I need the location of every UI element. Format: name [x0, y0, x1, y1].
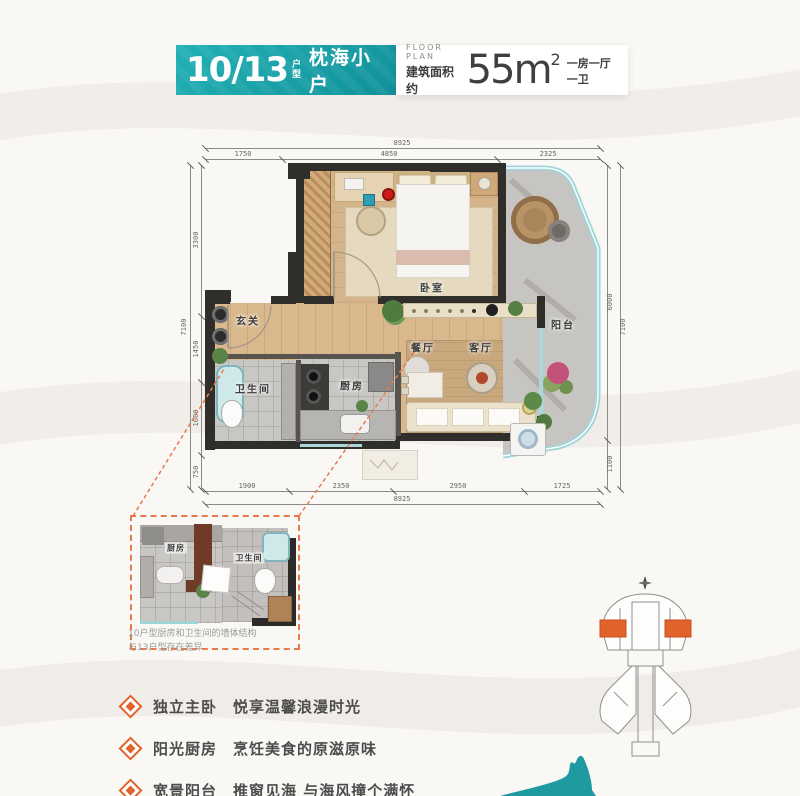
wall	[271, 296, 296, 304]
feature-title: 宽景阳台	[153, 780, 217, 796]
washing-machine-drum-icon	[518, 429, 538, 449]
dim-top-seg: 2325	[540, 150, 557, 158]
dim-right-seg: 1100	[606, 444, 614, 484]
stove-burner-icon	[306, 389, 321, 404]
sofa-cushion	[452, 408, 484, 426]
room-label-living: 客厅	[469, 340, 493, 355]
room-label-dining: 餐厅	[411, 340, 435, 355]
dimension-line	[205, 159, 600, 160]
inset-fridge	[142, 527, 164, 545]
wall	[537, 296, 545, 328]
inset-label-bathroom: 卫生间	[234, 553, 265, 564]
room-label-balcony: 阳台	[551, 317, 575, 332]
inset-bathtub	[262, 532, 290, 562]
entry-stool	[212, 328, 229, 345]
wall	[205, 290, 231, 302]
balcony-plant	[524, 392, 542, 410]
table-lamp	[478, 177, 491, 190]
feature-title: 阳光厨房	[153, 738, 217, 759]
feature-item: 独立主卧 悦享温馨浪漫时光	[122, 696, 415, 717]
balcony-flowers	[547, 362, 569, 384]
area-label: 建筑面积约	[406, 63, 461, 97]
inset-shelf	[268, 596, 292, 622]
area-banner: FLOOR PLAN 建筑面积约 55m2 一房一厅一卫	[396, 45, 628, 95]
balcony-table	[548, 220, 570, 242]
dimension-line	[205, 148, 600, 149]
dim-top-seg: 1750	[235, 150, 252, 158]
inset-note-line2: 与13户型存在差异	[128, 642, 256, 656]
inset-label-kitchen: 厨房	[165, 543, 187, 554]
feature-list: 独立主卧 悦享温馨浪漫时光 阳光厨房 烹饪美食的原滋原味 宽景阳台 推窗见海 与…	[122, 696, 415, 796]
title-banner: 10/13 户型 枕海小户	[176, 45, 396, 95]
speaker-icon	[382, 188, 395, 201]
inset-note-line1: 10户型厨房和卫生间的墙体结构	[128, 628, 256, 642]
feature-desc: 悦享温馨浪漫时光	[233, 696, 361, 717]
inset-door-leaf	[201, 565, 232, 594]
hall-plant	[382, 300, 404, 322]
wall	[304, 296, 334, 304]
inset-window	[140, 621, 198, 624]
stove-burner-icon	[306, 369, 321, 384]
room-label-bedroom: 卧室	[420, 280, 444, 295]
coffee-table-decor	[476, 372, 488, 384]
diamond-bullet-icon	[118, 694, 142, 718]
dim-left-seg: 1600	[192, 398, 200, 438]
laptop	[344, 178, 364, 190]
kitchen-sink	[340, 414, 370, 434]
sofa-cushion	[416, 408, 448, 426]
diamond-bullet-icon	[118, 736, 142, 760]
dining-table	[407, 372, 443, 398]
dim-left-seg: 3300	[192, 220, 200, 260]
desk-chair	[356, 206, 386, 236]
dim-right-seg: 6000	[606, 282, 614, 322]
layout-summary: 一房一厅一卫	[567, 55, 618, 95]
living-plant	[508, 301, 523, 316]
inset-toilet	[254, 568, 276, 594]
dimension-line	[201, 165, 202, 489]
area-value: 55m2	[467, 50, 561, 90]
wardrobe	[304, 171, 331, 302]
unit-name: 枕海小户	[309, 43, 386, 97]
inset-cabinet	[140, 556, 154, 598]
dim-top-seg: 4850	[381, 150, 398, 158]
dim-bottom-seg: 1725	[554, 482, 571, 490]
toilet	[221, 400, 243, 428]
dim-right-total: 7100	[619, 307, 627, 347]
wall	[498, 163, 506, 304]
kitchen-window	[300, 444, 362, 447]
room-label-entry: 玄关	[236, 313, 260, 328]
floorplan-page: 10/13 户型 枕海小户 FLOOR PLAN 建筑面积约 55m2 一房一厅…	[0, 0, 800, 796]
dimension-line	[190, 165, 191, 489]
tv-plant-pot	[486, 304, 498, 316]
dim-bottom-seg: 1900	[239, 482, 256, 490]
feature-item: 阳光厨房 烹饪美食的原滋原味	[122, 738, 415, 759]
feature-desc: 烹饪美食的原滋原味	[233, 738, 377, 759]
building-key-plan	[588, 576, 703, 762]
dim-bottom-seg: 2950	[450, 482, 467, 490]
entry-plant	[212, 348, 228, 364]
diamond-bullet-icon	[118, 778, 142, 796]
ac-platform	[362, 450, 418, 480]
fridge	[368, 362, 394, 392]
compass-icon	[638, 576, 652, 590]
bathroom-vanity	[281, 363, 296, 440]
inset-sink	[156, 566, 184, 584]
feature-item: 宽景阳台 推窗见海 与海风撞个满怀	[122, 780, 415, 796]
dining-chair	[401, 376, 409, 384]
dining-chair	[401, 387, 409, 395]
room-label-kitchen: 厨房	[340, 378, 364, 393]
dim-left-seg: 1450	[192, 329, 200, 369]
partition-wall	[213, 354, 396, 359]
entry-stool	[212, 306, 229, 323]
unit-type-label: 户型	[292, 60, 303, 81]
dim-bottom-seg: 2350	[333, 482, 350, 490]
feature-title: 独立主卧	[153, 696, 217, 717]
feature-desc: 推窗见海 与海风撞个满怀	[233, 780, 415, 796]
monitor	[363, 194, 375, 206]
whale-silhouette	[500, 750, 630, 796]
dimension-line	[205, 491, 600, 492]
dim-bottom-total: 8925	[394, 495, 411, 503]
unit-number: 10/13	[186, 53, 288, 87]
room-label-bathroom: 卫生间	[235, 381, 271, 396]
floor-plan-en-label: FLOOR PLAN	[406, 43, 461, 61]
dimension-line	[205, 504, 600, 505]
bed-runner	[396, 250, 470, 265]
inset-note: 10户型厨房和卫生间的墙体结构 与13户型存在差异	[128, 628, 256, 656]
dim-top-total: 8925	[394, 139, 411, 147]
dim-left-total: 7100	[180, 307, 188, 347]
kitchen-plant	[356, 400, 368, 412]
area-exponent: 2	[551, 50, 561, 69]
